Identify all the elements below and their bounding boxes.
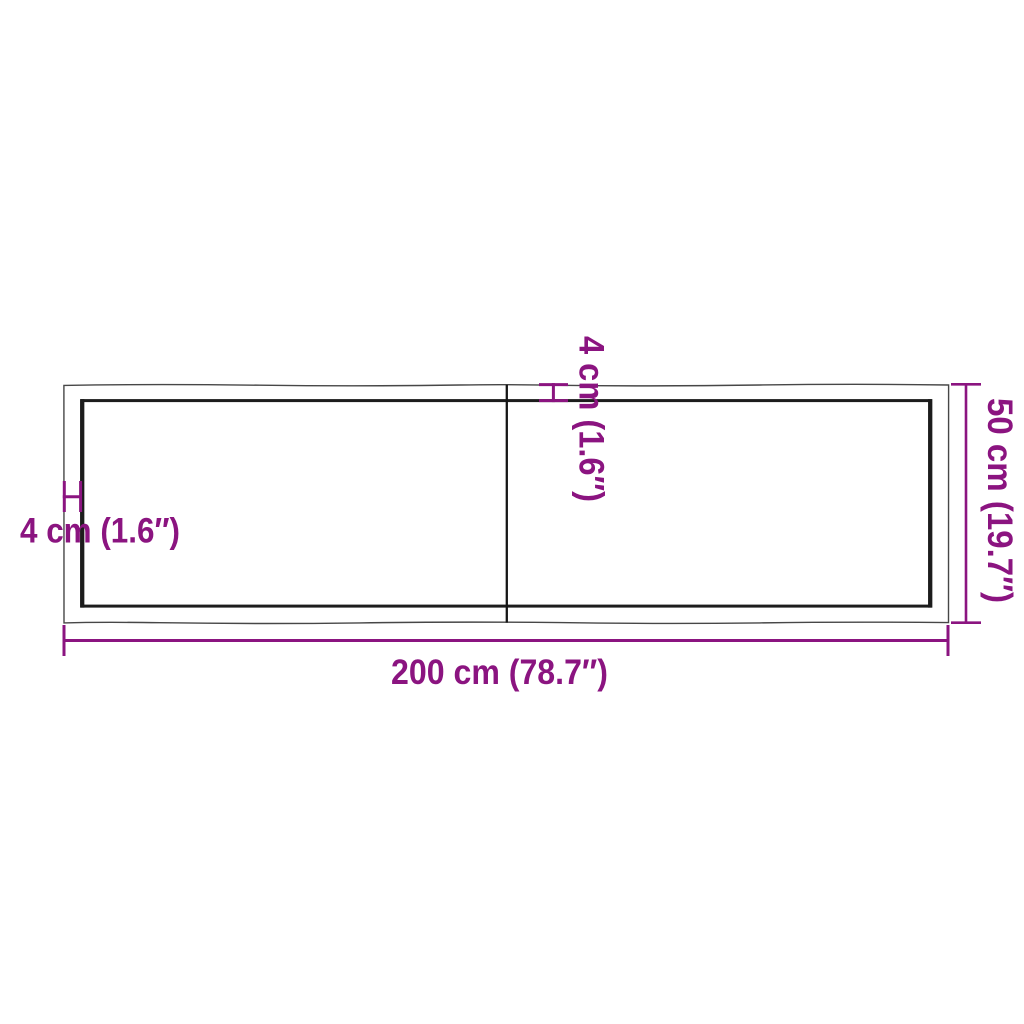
- svg-text:4 cm (1.6″): 4 cm (1.6″): [20, 511, 180, 550]
- svg-text:4 cm (1.6″): 4 cm (1.6″): [572, 336, 611, 502]
- svg-text:200 cm (78.7″): 200 cm (78.7″): [391, 653, 608, 692]
- svg-text:50 cm (19.7″): 50 cm (19.7″): [980, 398, 1019, 603]
